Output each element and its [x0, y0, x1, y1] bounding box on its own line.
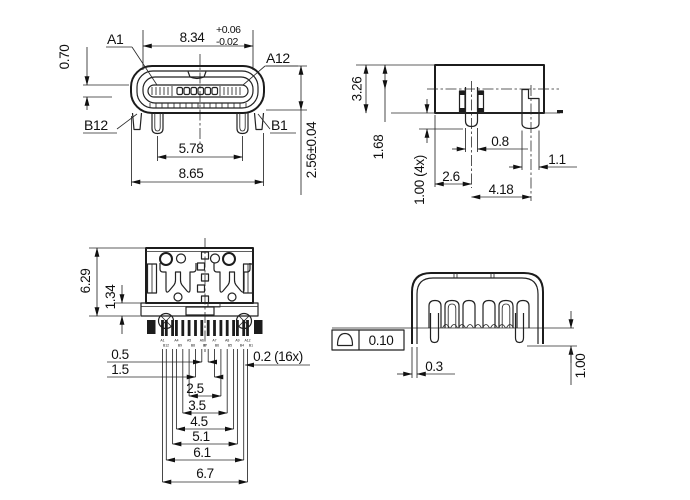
dim-top-to-center: 1.68	[371, 135, 386, 160]
pin-tag: A4	[174, 339, 178, 343]
dim-tongue-thickness: 0.70	[57, 45, 72, 70]
dim-front-leg-width: 0.8	[491, 134, 509, 149]
dim-rear-leg-width: 1.1	[548, 152, 566, 167]
pin-tag: A6	[200, 339, 204, 343]
pin-tag: B8	[191, 344, 195, 348]
pin-tag: B1	[249, 344, 253, 348]
front-view: 8.34 +0.06 -0.02 A1 A12 B12 B1 0.70 5.78…	[57, 24, 319, 195]
dim-pad-width: 0.2 (16x)	[253, 349, 303, 364]
dim-edge-to-leg: 2.6	[442, 169, 460, 184]
dim-pitch-5-1: 5.1	[192, 429, 210, 444]
technical-drawing: 8.34 +0.06 -0.02 A1 A12 B12 B1 0.70 5.78…	[0, 0, 690, 500]
dim-shell-height: 3.26	[350, 77, 365, 102]
pin-tag: B6	[215, 344, 219, 348]
pin-label-b12: B12	[84, 117, 108, 133]
tolerance-value: 0.10	[369, 333, 394, 348]
dim-pitch-3-5: 3.5	[188, 398, 206, 413]
dim-body-depth: 6.29	[78, 269, 93, 294]
dim-leg-protrusion-4x: 1.00 (4x)	[412, 155, 427, 205]
rear-view: 0.10 0.3 1.00	[332, 273, 588, 385]
pin-tag: B4	[240, 344, 244, 348]
side-view: 3.26 1.68 1.00 (4x) 2.6 4.18 0.8 1.1	[350, 65, 578, 205]
profile-of-surface-icon	[338, 334, 353, 346]
pin-label-a12: A12	[266, 50, 290, 66]
dim-leg-span: 5.78	[179, 141, 204, 156]
dim-width-inner: 8.34	[180, 30, 206, 45]
dim-pitch-6-1: 6.1	[193, 445, 211, 460]
pin-label-a1: A1	[107, 31, 124, 47]
pin-tag: A1	[160, 339, 164, 343]
pin-tag: A5	[187, 339, 191, 343]
dim-wall-thickness: 0.3	[425, 359, 443, 374]
dim-leg-protrusion: 1.00	[573, 354, 588, 379]
pin-tag: B9	[178, 344, 182, 348]
dim-pitch-6-7: 6.7	[196, 466, 214, 481]
dim-width-tol-plus: +0.06	[216, 24, 241, 36]
pin-tag: A12	[244, 339, 250, 343]
pin-tag: A8	[225, 339, 229, 343]
dim-height: 2.56±0.04	[304, 121, 319, 178]
pin-tag: B12	[163, 344, 169, 348]
top-view: A1 A4 A5 A6 A7 A8 A9 A12 B12 B9 B8 B7 B6…	[78, 238, 310, 482]
dim-width-outer: 8.65	[179, 166, 204, 181]
dim-pitch-4-5: 4.5	[190, 414, 208, 429]
pin-tag: A9	[235, 339, 239, 343]
pin-label-b1: B1	[271, 117, 288, 133]
pin-tag: A7	[212, 339, 216, 343]
dim-pitch-2-5: 2.5	[186, 381, 204, 396]
dim-flange-height: 1.34	[103, 284, 118, 310]
dim-leg-pitch: 4.18	[489, 182, 514, 197]
drawing-canvas: 8.34 +0.06 -0.02 A1 A12 B12 B1 0.70 5.78…	[0, 0, 690, 500]
dim-pitch-0-5: 0.5	[111, 347, 129, 362]
pin-tag: B7	[203, 344, 207, 348]
pin-tag: B5	[228, 344, 232, 348]
dim-width-tol-minus: -0.02	[216, 36, 238, 48]
pin-label-row: A1 A4 A5 A6 A7 A8 A9 A12 B12 B9 B8 B7 B6…	[160, 339, 253, 348]
dim-pitch-1-5: 1.5	[111, 362, 129, 377]
